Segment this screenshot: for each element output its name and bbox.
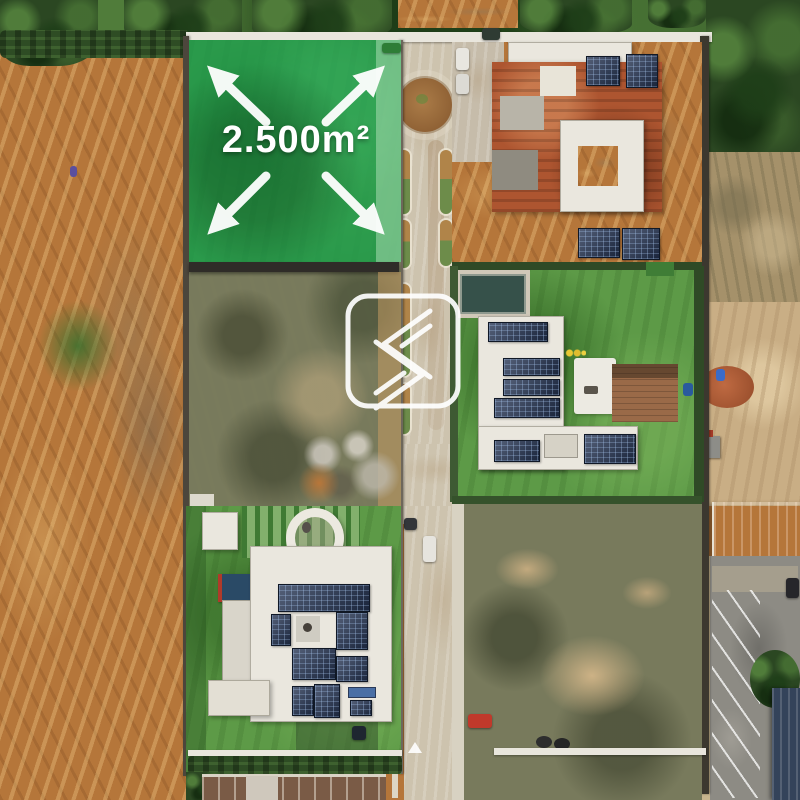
dark-object [536, 736, 552, 748]
tree-grove [706, 0, 800, 154]
solar-panel-array [278, 584, 370, 612]
road-marking-triangle [408, 742, 422, 753]
ground-solar-array [626, 54, 658, 88]
rooftop-equipment [544, 434, 578, 458]
person-on-field [70, 166, 77, 177]
pool-lounger [584, 386, 598, 394]
gray-roof-section [500, 96, 544, 130]
blue-object [716, 369, 725, 381]
yellow-flower-bed [564, 348, 586, 358]
white-car [456, 48, 469, 70]
solar-panel-array [503, 358, 560, 376]
white-debris [190, 494, 214, 506]
white-shed [202, 512, 238, 550]
pergola-shadow [612, 364, 678, 378]
solar-panel-array [494, 398, 560, 418]
tree-clump [648, 0, 706, 28]
dark-lap-pool [460, 274, 526, 314]
solar-panel-array [271, 614, 291, 646]
ground-solar-array [622, 228, 660, 260]
white-car [423, 536, 436, 562]
median-island [440, 150, 452, 214]
median-island [440, 220, 452, 266]
car [786, 578, 799, 598]
patio-table [303, 623, 312, 632]
solar-panel-array [494, 440, 540, 462]
lot-hedge-bottom [452, 496, 702, 504]
solar-panel-array [584, 434, 636, 464]
roundabout-island [398, 78, 452, 132]
car [352, 726, 366, 740]
solar-panel-array [336, 656, 368, 682]
patio-roof [208, 680, 270, 716]
orange-soil-spot [298, 462, 340, 504]
solar-thermal-strip [348, 687, 376, 698]
blue-barrel [683, 383, 693, 396]
solar-panel-array [503, 379, 560, 396]
navy-metal-roof-building [772, 688, 800, 800]
neighbor-roof-bottom [202, 774, 386, 800]
dry-scrub-field [706, 152, 800, 304]
ground-solar-array [586, 56, 620, 86]
dark-van [482, 28, 500, 40]
gray-roof-section [492, 150, 538, 190]
roundabout-shrub [416, 94, 428, 104]
car [404, 518, 417, 530]
solar-panel-array [292, 648, 336, 680]
wall-shadow [189, 262, 399, 272]
white-wall-pipe [494, 748, 706, 755]
vacant-lot-bottom-right [452, 504, 702, 800]
tree-clump [520, 0, 632, 34]
white-car [456, 74, 469, 94]
bottom-hedge-row [188, 756, 402, 774]
lot-sidewalk [452, 504, 464, 800]
solar-panel-array [336, 612, 368, 650]
concrete-slab [540, 66, 576, 96]
solar-panel-array [350, 700, 372, 716]
lot-hedge-right [694, 266, 704, 502]
tank-center [302, 522, 311, 533]
solar-panel-array [488, 322, 548, 342]
green-shed [646, 262, 674, 276]
red-car [468, 714, 492, 728]
aerial-photo: 2.500m² [0, 0, 800, 800]
ground-solar-array [578, 228, 620, 258]
angular-s-logo-watermark [342, 290, 464, 412]
vegetation-patch [38, 300, 118, 392]
area-label: 2.500m² [198, 116, 394, 164]
solar-panel-array [314, 684, 340, 718]
solar-panel-array [292, 686, 314, 716]
gray-soil-patch [110, 340, 192, 530]
dirt-gap [398, 0, 518, 28]
hedge-row [0, 30, 190, 58]
slab-notch [578, 146, 618, 186]
roof-white-section [246, 776, 278, 800]
